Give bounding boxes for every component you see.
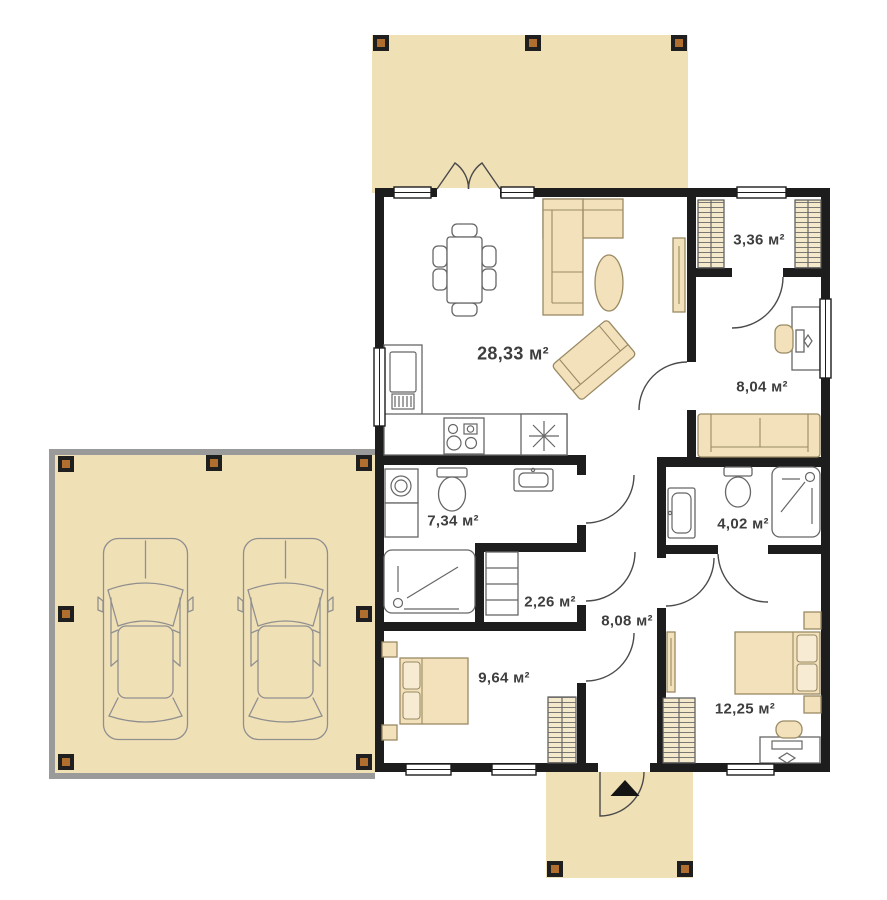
plan-graphics xyxy=(0,0,887,900)
washbasin-icon xyxy=(514,468,553,491)
room-label-hallway: 8,08 м² xyxy=(601,613,653,630)
room-label-bedroom2: 12,25 м² xyxy=(715,701,775,718)
double-bed-icon xyxy=(382,642,468,740)
wardrobe-icon xyxy=(663,698,695,763)
wardrobe-icon xyxy=(698,200,724,268)
cooktop-icon xyxy=(444,418,484,454)
post-icon xyxy=(58,35,693,877)
washing-machine-icon xyxy=(385,469,418,537)
car-icon xyxy=(98,539,193,740)
washbasin-icon xyxy=(668,488,695,538)
toilet-icon xyxy=(437,468,467,511)
toilet-icon xyxy=(724,467,752,507)
coffee-table-icon xyxy=(595,255,623,311)
shower-icon xyxy=(384,550,475,613)
office-chair-icon xyxy=(776,721,802,738)
sofa-icon xyxy=(698,414,820,457)
wardrobe-icon xyxy=(795,200,821,268)
lounge-chair-icon xyxy=(552,319,637,401)
desk-icon xyxy=(792,307,820,370)
tv-unit-icon xyxy=(673,238,685,312)
room-label-storage: 2,26 м² xyxy=(524,594,576,611)
dining-table-icon xyxy=(433,224,496,316)
room-label-bedroom1: 9,64 м² xyxy=(478,670,530,687)
room-label-bath1: 7,34 м² xyxy=(427,513,479,530)
office-chair-icon xyxy=(775,325,793,353)
room-label-office: 8,04 м² xyxy=(736,379,788,396)
sink-icon xyxy=(521,414,567,455)
shower-icon xyxy=(772,467,820,537)
mirror-icon xyxy=(667,632,675,692)
room-label-bath2: 4,02 м² xyxy=(717,516,769,533)
room-label-living: 28,33 м² xyxy=(477,344,549,365)
entrance-arrow-icon xyxy=(611,780,640,796)
room-label-closet: 3,36 м² xyxy=(733,232,785,249)
car-icon xyxy=(238,539,333,740)
double-bed-icon xyxy=(735,612,821,713)
floor-plan: 28,33 м² 3,36 м² 8,04 м² 7,34 м² 4,02 м²… xyxy=(0,0,887,900)
wardrobe-icon xyxy=(548,697,576,763)
fridge-icon xyxy=(384,345,422,415)
shelves-icon xyxy=(486,552,518,615)
desk-icon xyxy=(760,737,820,763)
